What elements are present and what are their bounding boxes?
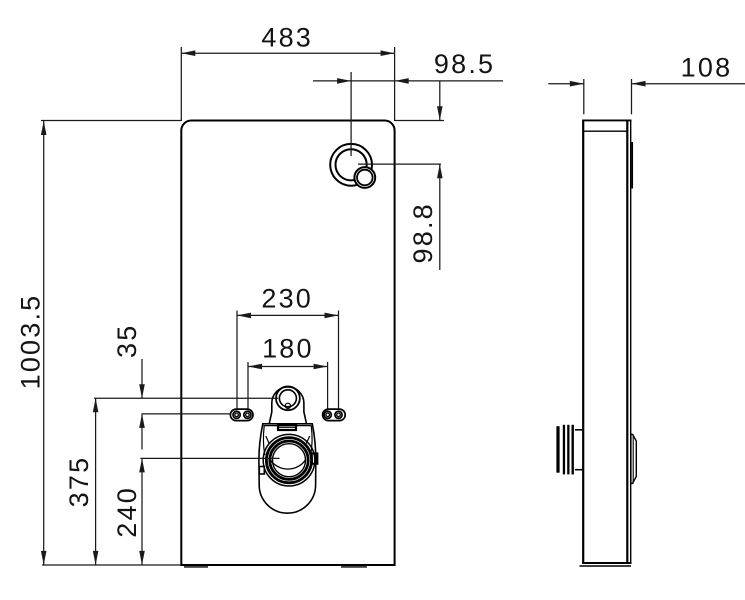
- svg-text:108: 108: [681, 53, 733, 83]
- svg-text:98.5: 98.5: [434, 49, 495, 79]
- svg-text:483: 483: [261, 22, 313, 52]
- svg-text:375: 375: [64, 456, 94, 508]
- svg-text:230: 230: [261, 284, 313, 314]
- svg-text:98.8: 98.8: [408, 202, 438, 263]
- svg-text:240: 240: [112, 486, 142, 538]
- svg-text:1003.5: 1003.5: [16, 294, 46, 390]
- svg-text:35: 35: [112, 324, 142, 358]
- svg-text:180: 180: [262, 333, 314, 363]
